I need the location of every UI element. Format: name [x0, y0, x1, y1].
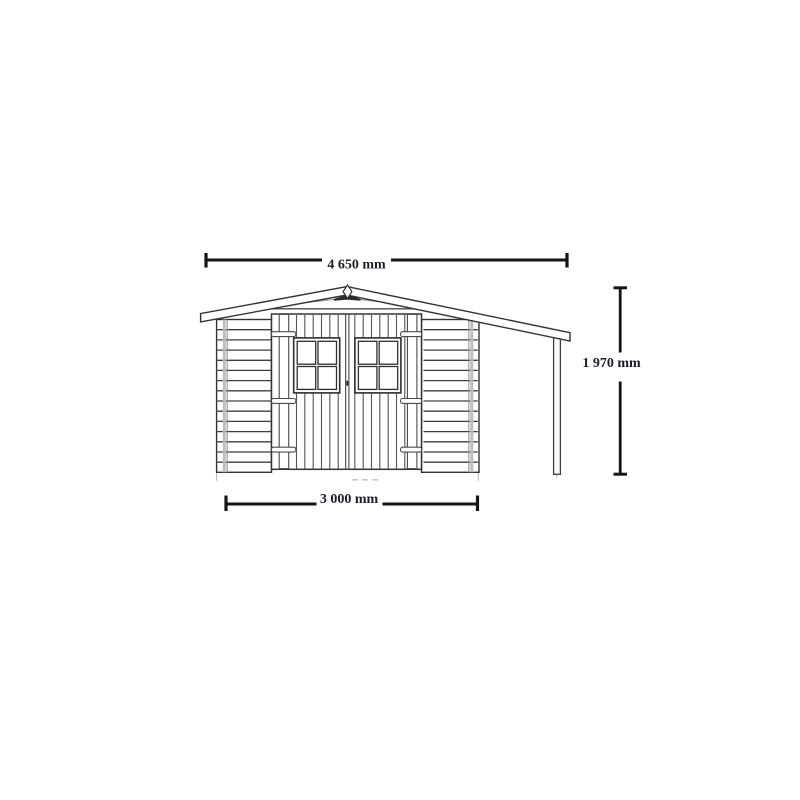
- svg-text:1 970 mm: 1 970 mm: [582, 356, 641, 371]
- svg-text:4 650 mm: 4 650 mm: [327, 258, 386, 273]
- svg-text:3 000 mm: 3 000 mm: [320, 492, 379, 507]
